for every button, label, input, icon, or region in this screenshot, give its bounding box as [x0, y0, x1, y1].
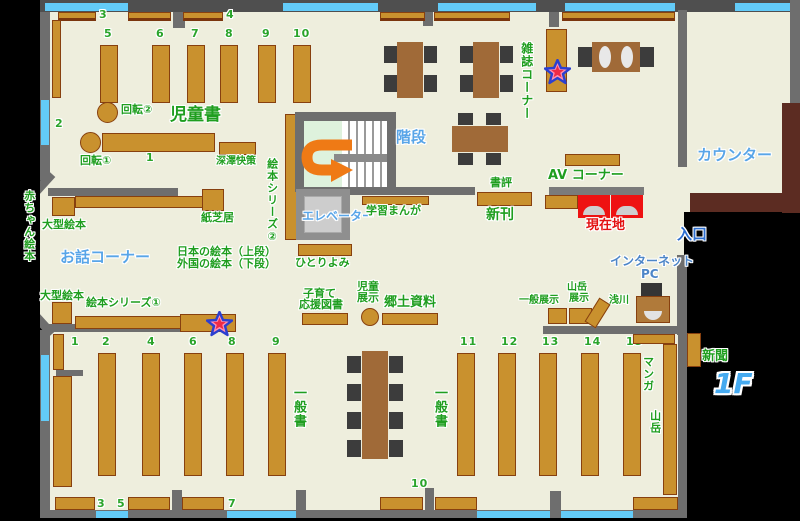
- chair: [389, 384, 403, 401]
- window: [735, 3, 790, 11]
- pillar: [296, 490, 306, 518]
- current-location-label: 現在地: [586, 219, 625, 234]
- shelf-number: 6: [156, 28, 165, 41]
- label-kamishibai: 紙芝居: [201, 212, 234, 225]
- label-kaiten1: 回転①: [80, 155, 111, 168]
- pillar: [550, 491, 561, 518]
- star-marker-icon: [206, 311, 233, 337]
- shelf: [75, 196, 207, 208]
- chair: [384, 46, 397, 63]
- label-fukazawa: 深澤快策: [216, 156, 256, 168]
- shelf-number: 3: [99, 9, 108, 22]
- chair: [389, 412, 403, 429]
- label-mountain-exhibit-1: 山岳: [567, 282, 587, 294]
- shelf: [434, 12, 510, 21]
- shelf-number: 6: [189, 336, 198, 349]
- area-label-elevator: エレベーター: [302, 210, 374, 224]
- shelf: [498, 353, 516, 476]
- wall-partition: [543, 326, 687, 334]
- label-general-exhibit: 一般展示: [519, 295, 559, 307]
- shelf: [302, 313, 348, 325]
- area-label-children-books: 児童書: [170, 106, 221, 126]
- shelf: [663, 344, 677, 495]
- label-asakawa: 浅川: [609, 295, 629, 307]
- chair: [640, 47, 654, 67]
- label-kaiten2: 回転②: [121, 104, 152, 117]
- shelf: [53, 376, 72, 487]
- area-label-new-books: 新刊: [486, 207, 514, 223]
- label-ehon-series2: 絵本シリーズ②: [265, 158, 278, 244]
- shelf-number: 8: [228, 336, 237, 349]
- shelf-number: 9: [262, 28, 271, 41]
- label-hitoriyomi: ひとりよみ: [295, 257, 350, 270]
- shelf-number: 2: [55, 118, 64, 131]
- exhibit-rack: [361, 308, 379, 326]
- shelf-number: 11: [460, 336, 477, 349]
- booth-seat: [583, 206, 605, 215]
- shelf: [548, 308, 567, 324]
- chair: [384, 75, 397, 92]
- label-study-manga: 学習まんが: [366, 205, 421, 218]
- chair: [389, 440, 403, 457]
- shelf: [98, 353, 116, 476]
- chair: [578, 47, 592, 67]
- shelf-number: 8: [225, 28, 234, 41]
- window: [565, 3, 675, 11]
- shelf: [457, 353, 475, 476]
- shelf-number: 4: [147, 336, 156, 349]
- shelf-number: 4: [226, 9, 235, 22]
- shelf-number: 5: [104, 28, 113, 41]
- star-marker-icon: [544, 59, 571, 85]
- shelf: [380, 12, 425, 21]
- area-label-entrance: 入口: [677, 226, 707, 243]
- shelf: [128, 12, 171, 21]
- shelf: [539, 353, 557, 476]
- shelf: [52, 197, 75, 216]
- label-pc: PC: [641, 268, 659, 282]
- shelf-number: 1: [71, 336, 80, 349]
- shelf-number: 3: [97, 498, 106, 511]
- wall: [295, 112, 395, 121]
- shelf: [633, 334, 675, 344]
- shelf: [380, 497, 423, 510]
- shelf: [102, 133, 215, 152]
- shelf: [183, 12, 223, 21]
- shelf-number: 5: [117, 498, 126, 511]
- shelf: [52, 302, 72, 324]
- shelf-number: 14: [584, 336, 601, 349]
- chair: [347, 412, 361, 429]
- shelf: [382, 313, 438, 325]
- window: [41, 355, 49, 421]
- wall: [40, 12, 50, 180]
- counter-desk: [690, 193, 800, 212]
- shelf-number: 12: [501, 336, 518, 349]
- shelf: [293, 45, 311, 103]
- chair: [458, 153, 473, 165]
- shelf: [562, 12, 675, 21]
- shelf: [477, 192, 532, 206]
- shelf-number: 2: [102, 336, 111, 349]
- window: [96, 511, 128, 518]
- shelf-number: 13: [542, 336, 559, 349]
- window: [41, 100, 49, 145]
- label-mountain-exhibit-2: 展示: [569, 293, 589, 305]
- shelf: [142, 353, 160, 476]
- shelf: [202, 189, 224, 211]
- booth-seat: [616, 206, 638, 215]
- shelf: [53, 334, 64, 370]
- shelf: [187, 45, 205, 103]
- shelf: [226, 353, 244, 476]
- shelf: [128, 497, 170, 510]
- label-children-exhibit-2: 展示: [357, 292, 379, 305]
- window: [45, 3, 128, 11]
- chair: [460, 46, 473, 63]
- shelf: [220, 45, 238, 103]
- shelf: [565, 154, 620, 166]
- label-baby-picture-books: 赤ちゃん絵本: [22, 190, 35, 262]
- rotating-rack: [80, 132, 101, 153]
- chair: [486, 153, 501, 165]
- area-label-stairs: 階段: [396, 129, 426, 146]
- area-label-story-corner: お話コーナー: [60, 249, 150, 266]
- shelf: [298, 244, 352, 256]
- shelf: [58, 12, 96, 21]
- pillar: [425, 488, 434, 518]
- wall-partition: [549, 187, 644, 195]
- shelf-number: 7: [191, 28, 200, 41]
- pillar: [172, 490, 182, 518]
- chair: [347, 384, 361, 401]
- shelf: [52, 20, 61, 98]
- label-mountain: 山岳: [648, 410, 661, 434]
- shelf: [268, 353, 286, 476]
- wall: [387, 112, 396, 194]
- reading-table: [452, 126, 508, 152]
- shelf: [55, 497, 95, 510]
- chair: [500, 46, 513, 63]
- area-label-av-corner: AV コーナー: [548, 169, 624, 184]
- area-label-newspaper: 新聞: [702, 350, 728, 365]
- area-label-magazine-corner: 雑誌コーナー: [519, 42, 533, 120]
- pillar: [549, 12, 559, 27]
- shelf: [184, 353, 202, 476]
- label-book-review: 書評: [490, 177, 512, 190]
- pc-monitor: [641, 283, 662, 297]
- stairs-up-arrow-icon: [298, 134, 360, 184]
- shelf-number: 10: [411, 478, 428, 491]
- shelf: [182, 497, 224, 510]
- chair: [347, 440, 361, 457]
- label-kosodate-2: 応援図書: [299, 299, 343, 312]
- av-seat: [599, 46, 611, 68]
- shelf: [623, 353, 641, 476]
- av-seat: [621, 46, 633, 68]
- reading-table: [362, 351, 388, 459]
- label-local-materials: 郷土資料: [384, 296, 436, 311]
- wall-partition: [48, 188, 178, 196]
- window: [438, 3, 536, 11]
- label-manga: マンガ: [641, 356, 654, 392]
- shelf-number: 10: [293, 28, 310, 41]
- shelf: [100, 45, 118, 103]
- area-label-counter: カウンター: [697, 147, 772, 164]
- chair: [458, 113, 473, 125]
- rotating-rack: [97, 102, 118, 123]
- library-floor-map: 3 4 5 6 7 8 9 10 2 回転② 児童書 1 回転① 深澤快策 絵本…: [0, 0, 800, 521]
- chair: [389, 356, 403, 373]
- chair: [460, 75, 473, 92]
- label-foreign-picture-books: 外国の絵本（下段）: [177, 258, 276, 271]
- shelf: [258, 45, 276, 103]
- area-label-general-books: 一般書: [431, 386, 446, 428]
- floor-badge: 1F: [714, 368, 753, 400]
- shelf: [633, 497, 678, 510]
- chair: [424, 46, 437, 63]
- shelf-number: 7: [228, 498, 237, 511]
- reading-table: [397, 42, 423, 98]
- newspaper-shelf: [687, 333, 701, 367]
- chair: [500, 75, 513, 92]
- shelf: [581, 353, 599, 476]
- shelf: [435, 497, 477, 510]
- label-ehon-series1: 絵本シリーズ①: [86, 297, 161, 310]
- shelf: [152, 45, 170, 103]
- shelf: [219, 142, 256, 155]
- shelf-number: 1: [146, 152, 155, 165]
- area-label-general-books: 一般書: [290, 386, 305, 428]
- shelf: [545, 195, 578, 209]
- shelf-number: 9: [272, 336, 281, 349]
- chair: [347, 356, 361, 373]
- window: [283, 3, 378, 11]
- shelf: [75, 316, 181, 329]
- wall: [790, 0, 800, 103]
- window: [227, 511, 297, 518]
- chair: [424, 75, 437, 92]
- label-large-picture-books: 大型絵本: [40, 290, 84, 303]
- wall-counter-partition: [678, 10, 687, 167]
- label-large-picture-books: 大型絵本: [42, 219, 86, 232]
- reading-table: [473, 42, 499, 98]
- chair: [486, 113, 501, 125]
